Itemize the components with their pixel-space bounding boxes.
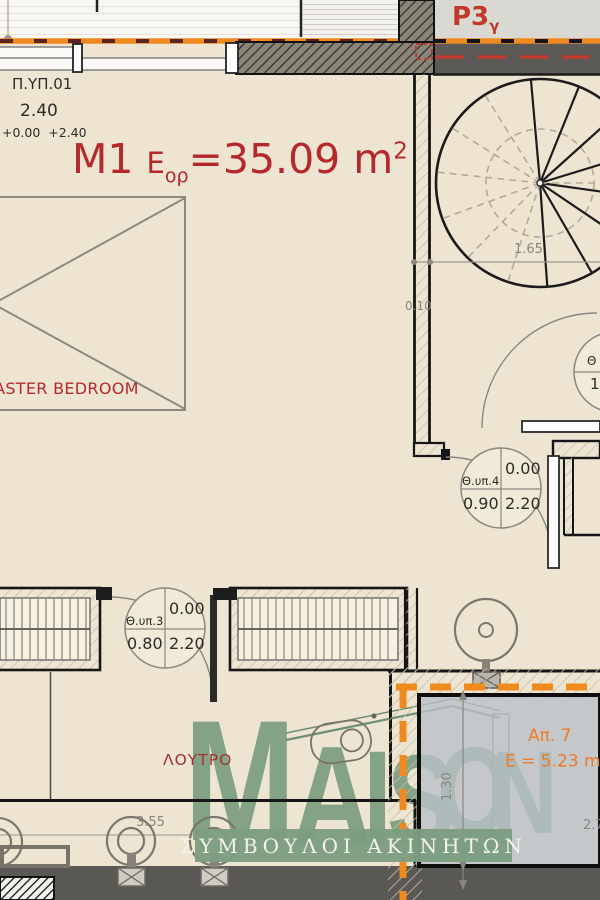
- door3-height: 2.20: [169, 636, 205, 653]
- unit-label: Π.ΥΠ.01: [12, 77, 72, 93]
- ap7-area-label: E = 5.23 m2: [505, 751, 600, 772]
- door4-height: 2.20: [505, 496, 541, 513]
- ap7-area-value: E = 5.23 m: [505, 752, 600, 772]
- dim-stair-diameter: 1.65: [514, 243, 543, 257]
- title-area-value: =35.09 m: [189, 135, 394, 183]
- dim-ap7-height: 1.30: [441, 772, 455, 801]
- door4-sill: 0.00: [505, 461, 541, 478]
- dim-bathroom-width: 3.55: [136, 816, 165, 830]
- floor-plan-canvas: M A I S O N: [0, 0, 600, 900]
- door3-tag-label: Θ.υπ.3: [126, 615, 163, 627]
- room-label-master-bedroom: MASTER BEDROOM: [0, 381, 139, 398]
- door4-width: 0.90: [463, 496, 499, 513]
- door3-sill: 0.00: [169, 601, 205, 618]
- column-label-p3: P3γ: [452, 4, 499, 35]
- room-label-bathroom: ΛΟΥΤΡΟ: [163, 752, 232, 768]
- title-e: E: [147, 146, 165, 180]
- apartment-title: M1 Eορ=35.09 m2: [72, 138, 408, 187]
- door3-width: 0.80: [127, 636, 163, 653]
- logo-tagline: ΣΥΜΒΟΥΛΟΙ ΑΚΙΝΗΤΩΝ: [180, 834, 527, 858]
- title-e-subscript: ορ: [165, 165, 189, 187]
- title-sup2: 2: [393, 138, 408, 164]
- door5-value-partial: 1: [590, 377, 600, 393]
- p3-text: P3: [452, 2, 489, 32]
- dim-ap7-width: 2.7: [583, 819, 600, 833]
- logo-tagline-banner: ΣΥΜΒΟΥΛΟΙ ΑΚΙΝΗΤΩΝ: [195, 829, 512, 862]
- ap7-label: Απ. 7: [528, 728, 572, 746]
- door5-tag-label-partial: Θ: [587, 355, 596, 368]
- door4-tag-label: Θ.υπ.4: [462, 475, 499, 487]
- ceiling-height-label: 2.40: [20, 103, 58, 121]
- p3-subscript: γ: [489, 17, 499, 35]
- title-m1: M1: [72, 135, 133, 183]
- dim-wall-thickness: 0.10: [405, 300, 432, 313]
